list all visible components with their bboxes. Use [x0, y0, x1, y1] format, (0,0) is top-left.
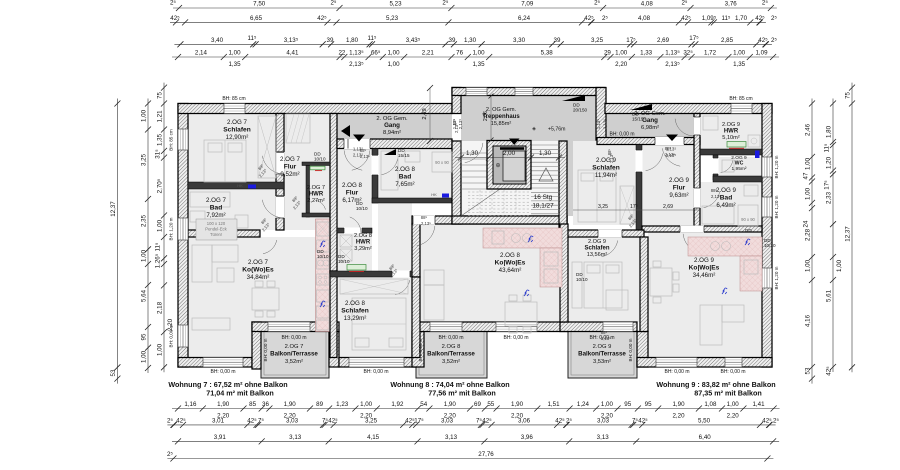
svg-text:1,00: 1,00	[733, 50, 746, 57]
svg-text:31⁵: 31⁵	[155, 149, 162, 159]
svg-text:2.OG 9: 2.OG 9	[716, 187, 737, 194]
svg-text:1,13⁵: 1,13⁵	[349, 50, 364, 57]
svg-text:HWR: HWR	[356, 240, 371, 246]
svg-text:1,90: 1,90	[217, 401, 230, 408]
svg-text:2,28: 2,28	[805, 228, 812, 241]
svg-text:2,85: 2,85	[721, 37, 734, 44]
svg-text:1,13⁵: 1,13⁵	[452, 119, 457, 130]
svg-text:66⁵: 66⁵	[371, 50, 381, 57]
svg-text:7,50: 7,50	[253, 1, 266, 8]
svg-text:3,52m²: 3,52m²	[285, 359, 303, 365]
svg-text:42⁵: 42⁵	[176, 417, 186, 424]
svg-text:2,13⁵: 2,13⁵	[349, 61, 364, 68]
svg-text:11,94m²: 11,94m²	[595, 172, 617, 179]
svg-text:1,41: 1,41	[752, 401, 765, 408]
svg-text:2.OG 9: 2.OG 9	[669, 177, 690, 184]
svg-text:1,00: 1,00	[472, 50, 485, 57]
svg-text:1,00: 1,00	[836, 259, 843, 272]
svg-text:1,33: 1,33	[640, 50, 653, 57]
svg-text:7⁵: 7⁵	[258, 417, 264, 424]
svg-text:1,13⁵: 1,13⁵	[666, 147, 677, 152]
svg-text:1,20: 1,20	[826, 156, 833, 169]
svg-text:2,69: 2,69	[663, 204, 673, 210]
svg-text:2.OG 7: 2.OG 7	[248, 259, 269, 266]
svg-text:1,90: 1,90	[672, 401, 685, 408]
svg-text:18,1/27: 18,1/27	[532, 203, 554, 210]
svg-text:12,37: 12,37	[845, 226, 852, 242]
svg-text:39: 39	[554, 37, 561, 44]
svg-text:71,04 m² mit Balkon: 71,04 m² mit Balkon	[206, 389, 274, 398]
svg-text:88⁵: 88⁵	[421, 215, 428, 220]
svg-text:3,13⁵: 3,13⁵	[284, 37, 299, 44]
svg-text:39: 39	[327, 37, 334, 44]
svg-text:2⁵: 2⁵	[762, 0, 768, 7]
svg-text:1,13⁵: 1,13⁵	[665, 50, 680, 57]
svg-text:3,29m²: 3,29m²	[354, 246, 372, 252]
svg-text:15/15: 15/15	[632, 117, 644, 122]
svg-text:29: 29	[604, 50, 611, 57]
svg-text:Türen!: Türen!	[210, 232, 222, 237]
svg-text:42⁵: 42⁵	[638, 417, 648, 424]
svg-text:BH: 0,00 m: BH: 0,00 m	[438, 335, 463, 341]
svg-text:2,13⁵: 2,13⁵	[421, 221, 431, 226]
svg-text:BH: 0,00 m: BH: 0,00 m	[609, 132, 634, 138]
svg-text:55: 55	[487, 401, 494, 408]
svg-text:2,13⁵: 2,13⁵	[665, 61, 680, 68]
svg-text:11⁵: 11⁵	[722, 15, 731, 22]
svg-text:42⁵: 42⁵	[317, 15, 327, 22]
svg-text:1,00: 1,00	[157, 343, 164, 356]
svg-text:75: 75	[845, 92, 852, 99]
svg-text:22: 22	[338, 50, 345, 57]
svg-text:4,16: 4,16	[805, 314, 812, 327]
svg-text:6,24: 6,24	[518, 15, 531, 22]
svg-text:5,10m²: 5,10m²	[722, 135, 740, 141]
svg-text:Flur: Flur	[346, 190, 359, 197]
svg-text:4,15: 4,15	[367, 434, 380, 441]
svg-text:1,80: 1,80	[826, 125, 833, 138]
svg-text:13,56m²: 13,56m²	[587, 252, 608, 258]
svg-text:1,21: 1,21	[157, 110, 164, 123]
svg-text:7,92m²: 7,92m²	[206, 212, 225, 219]
svg-text:2⁵: 2⁵	[566, 417, 572, 424]
svg-text:BH: 85 cm: BH: 85 cm	[729, 96, 752, 102]
svg-text:Schlafen: Schlafen	[223, 127, 250, 134]
svg-text:54: 54	[420, 401, 427, 408]
svg-text:Balkon/Terrasse: Balkon/Terrasse	[578, 350, 626, 357]
svg-text:10/10: 10/10	[576, 277, 588, 282]
svg-text:2,00: 2,00	[503, 150, 516, 157]
svg-text:32⁵: 32⁵	[683, 50, 693, 57]
svg-text:2,21: 2,21	[422, 50, 435, 57]
svg-text:Flur: Flur	[284, 164, 297, 171]
svg-text:BH: 1,20 m: BH: 1,20 m	[169, 217, 174, 240]
svg-text:1,24: 1,24	[577, 401, 590, 408]
svg-text:BH: 1,20 m: BH: 1,20 m	[774, 155, 779, 178]
svg-text:1,00: 1,00	[805, 157, 812, 170]
svg-text:2⁵: 2⁵	[594, 0, 600, 7]
svg-text:2.OG 9: 2.OG 9	[694, 257, 715, 264]
svg-text:1,90: 1,90	[284, 401, 297, 408]
svg-text:13,29m²: 13,29m²	[344, 315, 367, 322]
svg-text:1,00: 1,00	[805, 259, 812, 272]
svg-text:3,13: 3,13	[445, 434, 458, 441]
svg-text:42⁵: 42⁵	[170, 15, 180, 22]
svg-text:2⁵: 2⁵	[602, 15, 608, 22]
svg-text:WC: WC	[735, 161, 744, 167]
svg-text:2,49: 2,49	[422, 108, 428, 119]
svg-text:2⁵: 2⁵	[773, 417, 779, 424]
svg-text:15,85m²: 15,85m²	[491, 121, 512, 127]
svg-text:1,92: 1,92	[391, 401, 404, 408]
svg-text:2,18: 2,18	[157, 301, 164, 314]
svg-text:11⁵: 11⁵	[824, 143, 831, 152]
svg-text:1,00: 1,00	[601, 401, 614, 408]
svg-text:27,76: 27,76	[478, 451, 494, 458]
svg-text:2,20: 2,20	[672, 412, 685, 419]
svg-text:3,52m²: 3,52m²	[442, 359, 460, 365]
svg-text:2.OG 7: 2.OG 7	[227, 119, 248, 126]
svg-text:1,72: 1,72	[704, 50, 717, 57]
svg-text:95: 95	[645, 401, 652, 408]
svg-text:12,90m²: 12,90m²	[226, 134, 249, 141]
svg-text:1,35: 1,35	[472, 61, 485, 68]
svg-text:1,35: 1,35	[228, 61, 241, 68]
svg-text:6,65: 6,65	[250, 15, 263, 22]
svg-text:1,00: 1,00	[360, 401, 373, 408]
svg-text:9,63m²: 9,63m²	[669, 192, 688, 199]
svg-text:2,20: 2,20	[727, 412, 740, 419]
svg-text:5,61: 5,61	[826, 289, 833, 302]
svg-text:Bad: Bad	[210, 205, 222, 212]
svg-text:3,01: 3,01	[212, 417, 225, 424]
svg-text:5,23: 5,23	[389, 1, 402, 8]
svg-text:3,91: 3,91	[214, 434, 227, 441]
svg-text:Bad: Bad	[399, 174, 411, 181]
svg-text:2⁵: 2⁵	[167, 417, 173, 424]
svg-text:39: 39	[449, 37, 456, 44]
svg-text:10/10: 10/10	[317, 254, 329, 259]
svg-text:2⁵: 2⁵	[167, 451, 173, 458]
svg-text:2⁵: 2⁵	[681, 0, 687, 7]
svg-text:1,35: 1,35	[733, 61, 746, 68]
svg-text:3,40: 3,40	[211, 37, 224, 44]
svg-text:3,13: 3,13	[289, 434, 302, 441]
svg-text:BH: 0,00 m: BH: 0,00 m	[664, 369, 689, 375]
svg-text:90 x 90: 90 x 90	[435, 160, 449, 165]
svg-text:36: 36	[262, 401, 269, 408]
svg-text:2,70⁵: 2,70⁵	[157, 178, 164, 193]
svg-text:5,50: 5,50	[698, 417, 711, 424]
svg-text:2.OG 7: 2.OG 7	[206, 197, 227, 204]
svg-text:2,06: 2,06	[483, 111, 489, 121]
svg-text:3,25: 3,25	[365, 417, 378, 424]
svg-text:HK: HK	[431, 192, 437, 197]
svg-text:17⁵: 17⁵	[414, 417, 424, 424]
svg-text:6,49m²: 6,49m²	[716, 202, 735, 209]
svg-text:2,27m²: 2,27m²	[307, 198, 325, 204]
svg-text:BH: 0,00 m: BH: 0,00 m	[720, 369, 745, 375]
svg-text:Schlafen: Schlafen	[341, 308, 368, 315]
svg-text:HWR: HWR	[309, 192, 324, 198]
svg-text:6,98m²: 6,98m²	[641, 125, 659, 131]
svg-text:BH: 1,20 m: BH: 1,20 m	[774, 266, 779, 289]
svg-text:Ko|Wo|Es: Ko|Wo|Es	[689, 265, 720, 272]
svg-text:2⁵: 2⁵	[442, 0, 448, 7]
svg-text:3,06: 3,06	[518, 417, 531, 424]
svg-text:1,00: 1,00	[387, 61, 400, 68]
svg-text:76: 76	[456, 50, 463, 57]
svg-text:3,03: 3,03	[286, 417, 299, 424]
svg-text:3,76: 3,76	[725, 1, 738, 8]
svg-text:1,30: 1,30	[466, 150, 479, 157]
svg-text:95: 95	[624, 401, 631, 408]
svg-text:Schlafen: Schlafen	[592, 165, 619, 172]
svg-text:2.OG 9: 2.OG 9	[588, 239, 606, 245]
svg-text:1,13⁵: 1,13⁵	[353, 147, 364, 152]
svg-text:1,00: 1,00	[228, 50, 241, 57]
svg-text:1,51: 1,51	[547, 401, 560, 408]
svg-text:3,25: 3,25	[141, 153, 148, 166]
svg-text:1,90: 1,90	[511, 401, 524, 408]
svg-text:16 Stg: 16 Stg	[534, 194, 553, 201]
svg-text:1,13⁵: 1,13⁵	[596, 119, 601, 130]
svg-text:2.OG 8: 2.OG 8	[442, 344, 461, 350]
svg-text:9,52m²: 9,52m²	[280, 171, 299, 178]
svg-text:4,08: 4,08	[638, 15, 651, 22]
svg-text:1,16: 1,16	[184, 401, 197, 408]
svg-text:12,37: 12,37	[110, 201, 117, 217]
svg-text:2,13⁵: 2,13⁵	[458, 119, 463, 130]
svg-text:2.OG 7: 2.OG 7	[285, 344, 304, 350]
svg-text:53: 53	[110, 369, 117, 376]
svg-text:2⁵: 2⁵	[330, 0, 336, 7]
svg-text:1,90: 1,90	[444, 401, 457, 408]
svg-text:69: 69	[474, 401, 481, 408]
svg-text:17⁵: 17⁵	[626, 37, 636, 44]
svg-text:87,35 m² mit Balkon: 87,35 m² mit Balkon	[694, 389, 762, 398]
svg-text:2.OG 8: 2.OG 8	[345, 300, 366, 307]
svg-text:BH: 0,00 m: BH: 0,00 m	[210, 369, 235, 375]
svg-text:2. OG Gem.: 2. OG Gem.	[486, 107, 517, 113]
svg-text:75: 75	[157, 92, 164, 99]
svg-text:1,30: 1,30	[464, 37, 477, 44]
svg-text:11⁵: 11⁵	[368, 35, 377, 42]
svg-text:7,09: 7,09	[521, 1, 534, 8]
svg-text:3,30: 3,30	[513, 37, 526, 44]
svg-text:1,70: 1,70	[735, 15, 748, 22]
svg-text:BH: 0,00 m: BH: 0,00 m	[263, 338, 268, 361]
svg-text:42⁵: 42⁵	[758, 37, 768, 44]
svg-text:85: 85	[249, 401, 256, 408]
svg-text:3,13: 3,13	[597, 434, 610, 441]
svg-text:42⁵: 42⁵	[762, 417, 772, 424]
svg-text:BH: 85 cm: BH: 85 cm	[222, 96, 245, 102]
svg-text:95: 95	[141, 333, 148, 340]
svg-text:Balkon/Terrasse: Balkon/Terrasse	[270, 350, 318, 357]
svg-text:2.OG 8: 2.OG 8	[354, 233, 372, 239]
svg-text:1,00: 1,00	[805, 187, 812, 200]
svg-text:2.OG 7: 2.OG 7	[280, 156, 301, 163]
svg-text:3,03: 3,03	[441, 417, 454, 424]
svg-text:2.OG 9: 2.OG 9	[722, 122, 740, 128]
svg-text:1,00: 1,00	[157, 219, 164, 232]
svg-text:2.OG 8: 2.OG 8	[500, 252, 521, 259]
svg-text:1,00: 1,00	[727, 401, 740, 408]
svg-text:2,13⁵: 2,13⁵	[711, 194, 721, 199]
svg-text:2,13⁵: 2,13⁵	[609, 153, 614, 163]
svg-text:2⁵: 2⁵	[771, 15, 777, 22]
svg-text:4,08: 4,08	[641, 1, 654, 8]
svg-text:BH: 0,00 m: BH: 0,00 m	[418, 338, 423, 361]
svg-text:11⁵: 11⁵	[248, 35, 257, 42]
svg-text:Bad: Bad	[720, 195, 732, 202]
svg-text:34,84m²: 34,84m²	[247, 274, 270, 281]
svg-text:BH: 1,20 m: BH: 1,20 m	[774, 195, 779, 218]
svg-text:34,46m²: 34,46m²	[693, 272, 716, 279]
svg-text:+5,76m: +5,76m	[548, 127, 565, 133]
svg-text:2.OG 7: 2.OG 7	[307, 185, 325, 191]
svg-text:3,25: 3,25	[598, 204, 608, 210]
svg-text:42⁵: 42⁵	[755, 15, 765, 22]
svg-text:Schlafen: Schlafen	[584, 246, 609, 252]
svg-text:1,00: 1,00	[387, 50, 400, 57]
svg-text:2,33: 2,33	[826, 191, 833, 204]
svg-text:42⁵: 42⁵	[681, 15, 691, 22]
svg-text:42⁵: 42⁵	[584, 15, 594, 22]
svg-text:1,09⁵: 1,09⁵	[702, 15, 717, 22]
svg-text:2,14: 2,14	[195, 50, 208, 57]
svg-text:43,64m²: 43,64m²	[499, 267, 522, 274]
svg-text:1,26⁵: 1,26⁵	[155, 253, 162, 268]
svg-text:47: 47	[803, 172, 810, 179]
svg-text:1,08: 1,08	[704, 401, 717, 408]
svg-text:3,96: 3,96	[521, 434, 534, 441]
svg-text:1,80: 1,80	[346, 37, 359, 44]
svg-text:BH: 0,00 m: BH: 0,00 m	[628, 338, 633, 361]
svg-text:1,00: 1,00	[141, 350, 148, 363]
svg-text:2.OG 9: 2.OG 9	[593, 344, 612, 350]
svg-text:2,13⁵: 2,13⁵	[603, 119, 608, 130]
svg-text:2,69: 2,69	[657, 37, 670, 44]
svg-text:24: 24	[803, 220, 810, 227]
svg-text:Gang: Gang	[642, 117, 658, 124]
svg-text:2,46: 2,46	[805, 123, 812, 136]
svg-text:88⁵: 88⁵	[711, 188, 718, 193]
svg-text:11⁵: 11⁵	[155, 242, 162, 251]
svg-text:10/10: 10/10	[764, 243, 776, 248]
svg-text:1,00: 1,00	[615, 50, 628, 57]
svg-text:1,00: 1,00	[141, 249, 148, 262]
svg-text:15/15: 15/15	[398, 153, 410, 158]
svg-text:5,64: 5,64	[141, 289, 148, 302]
svg-text:Ko|Wo|Es: Ko|Wo|Es	[495, 260, 526, 267]
svg-text:2⁵: 2⁵	[170, 0, 176, 7]
svg-text:Balkon/Terrasse: Balkon/Terrasse	[427, 350, 475, 357]
svg-text:BH: 0,00 m: BH: 0,00 m	[281, 335, 306, 341]
svg-text:1,00: 1,00	[141, 109, 148, 122]
svg-text:BH: 0,00 m: BH: 0,00 m	[363, 369, 388, 375]
svg-text:10/10: 10/10	[338, 259, 350, 264]
svg-text:17⁵: 17⁵	[824, 180, 831, 190]
svg-text:2,13⁵: 2,13⁵	[601, 336, 611, 341]
svg-text:◈: ◈	[532, 126, 536, 132]
svg-text:5,38: 5,38	[541, 50, 554, 57]
svg-text:42⁵: 42⁵	[555, 417, 565, 424]
svg-text:3,25: 3,25	[591, 37, 604, 44]
svg-text:42⁵: 42⁵	[328, 417, 338, 424]
svg-text:53: 53	[805, 367, 812, 374]
svg-text:Ko(Wo)Es: Ko(Wo)Es	[242, 267, 274, 274]
svg-text:2,20: 2,20	[167, 318, 174, 331]
svg-text:2,13⁵: 2,13⁵	[666, 153, 677, 158]
svg-text:8,94m²: 8,94m²	[383, 130, 401, 136]
svg-text:1,95m²: 1,95m²	[732, 166, 747, 172]
svg-text:⊕: ⊕	[495, 163, 500, 169]
svg-text:10/10: 10/10	[314, 157, 326, 162]
svg-text:20/150: 20/150	[573, 108, 587, 113]
svg-text:2.OG 8: 2.OG 8	[395, 166, 416, 173]
svg-text:2,13⁵: 2,13⁵	[353, 153, 364, 158]
svg-text:3,43⁵: 3,43⁵	[406, 37, 421, 44]
svg-text:88⁵: 88⁵	[601, 330, 608, 335]
svg-text:17⁵: 17⁵	[630, 204, 638, 210]
svg-text:2⁵: 2⁵	[771, 37, 777, 44]
svg-text:1,09: 1,09	[755, 50, 768, 57]
svg-text:100 x 120: 100 x 120	[207, 221, 226, 226]
svg-text:2,35: 2,35	[141, 214, 148, 227]
svg-text:90 x 90: 90 x 90	[741, 217, 755, 222]
svg-text:42⁵: 42⁵	[482, 417, 492, 424]
svg-text:Gang: Gang	[384, 122, 400, 129]
svg-text:42⁵: 42⁵	[247, 417, 257, 424]
svg-text:1,30: 1,30	[539, 150, 552, 157]
svg-text:Pendel-Eck: Pendel-Eck	[205, 227, 227, 232]
svg-text:1,23: 1,23	[336, 401, 349, 408]
svg-text:1,35: 1,35	[157, 133, 164, 146]
svg-text:17⁵: 17⁵	[689, 35, 699, 42]
svg-text:DD: DD	[745, 228, 752, 233]
svg-text:10/10: 10/10	[356, 206, 368, 211]
svg-text:3,03: 3,03	[597, 417, 610, 424]
svg-text:BH: 0,00 m: BH: 0,00 m	[503, 335, 528, 341]
svg-text:2,20: 2,20	[615, 61, 628, 68]
svg-text:4,41: 4,41	[286, 50, 299, 57]
svg-text:77,56 m² mit Balkon: 77,56 m² mit Balkon	[428, 389, 496, 398]
svg-text:BH: 85 cm: BH: 85 cm	[169, 129, 174, 151]
svg-text:HWR: HWR	[724, 129, 739, 135]
svg-text:5,23: 5,23	[386, 15, 399, 22]
svg-text:7,65m²: 7,65m²	[395, 181, 414, 188]
svg-text:Flur: Flur	[673, 185, 686, 192]
svg-text:89: 89	[316, 401, 323, 408]
svg-text:6,40: 6,40	[699, 434, 712, 441]
svg-text:2.OG 8: 2.OG 8	[342, 182, 363, 189]
svg-text:HK: HK	[237, 183, 243, 188]
svg-text:42⁵: 42⁵	[826, 366, 833, 376]
svg-text:3,53m²: 3,53m²	[593, 359, 611, 365]
